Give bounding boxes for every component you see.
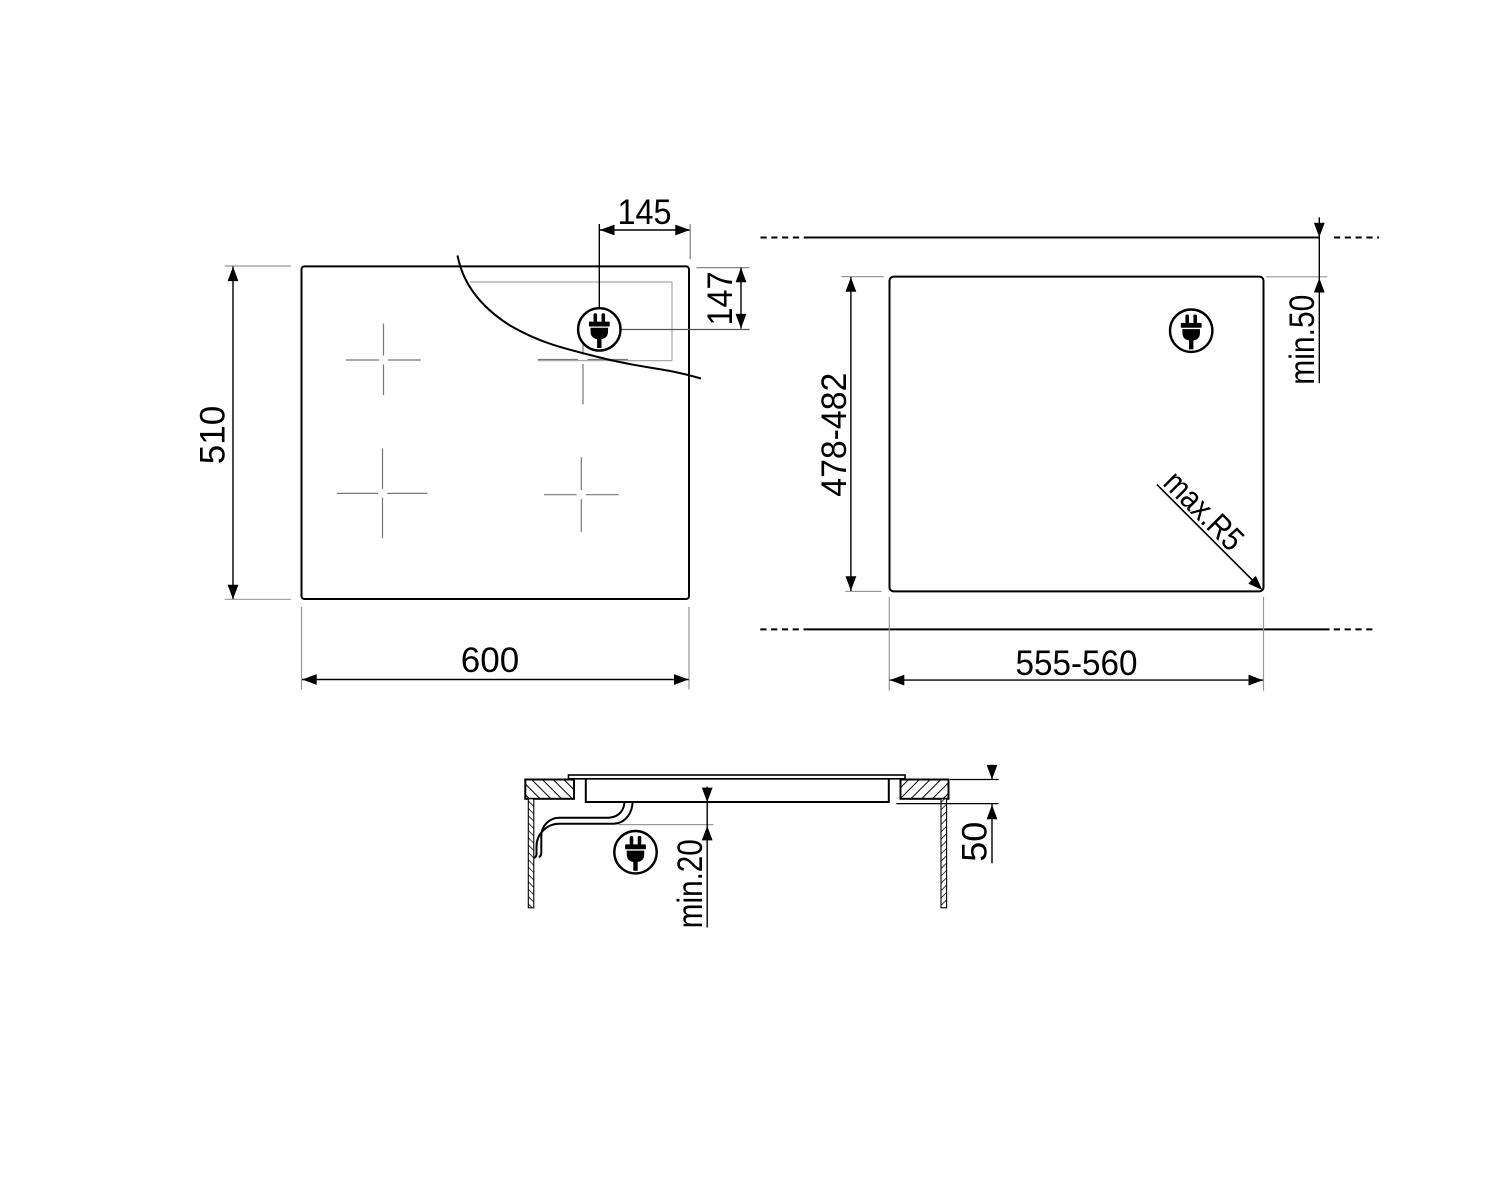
svg-text:50: 50 [956, 822, 995, 862]
svg-text:555-560: 555-560 [1016, 644, 1138, 683]
svg-text:478-482: 478-482 [815, 373, 854, 497]
svg-text:145: 145 [618, 193, 672, 232]
svg-text:600: 600 [461, 641, 519, 680]
svg-text:min.20: min.20 [671, 839, 710, 928]
svg-text:147: 147 [701, 272, 740, 326]
svg-text:min.50: min.50 [1283, 295, 1322, 385]
svg-text:510: 510 [194, 406, 233, 464]
